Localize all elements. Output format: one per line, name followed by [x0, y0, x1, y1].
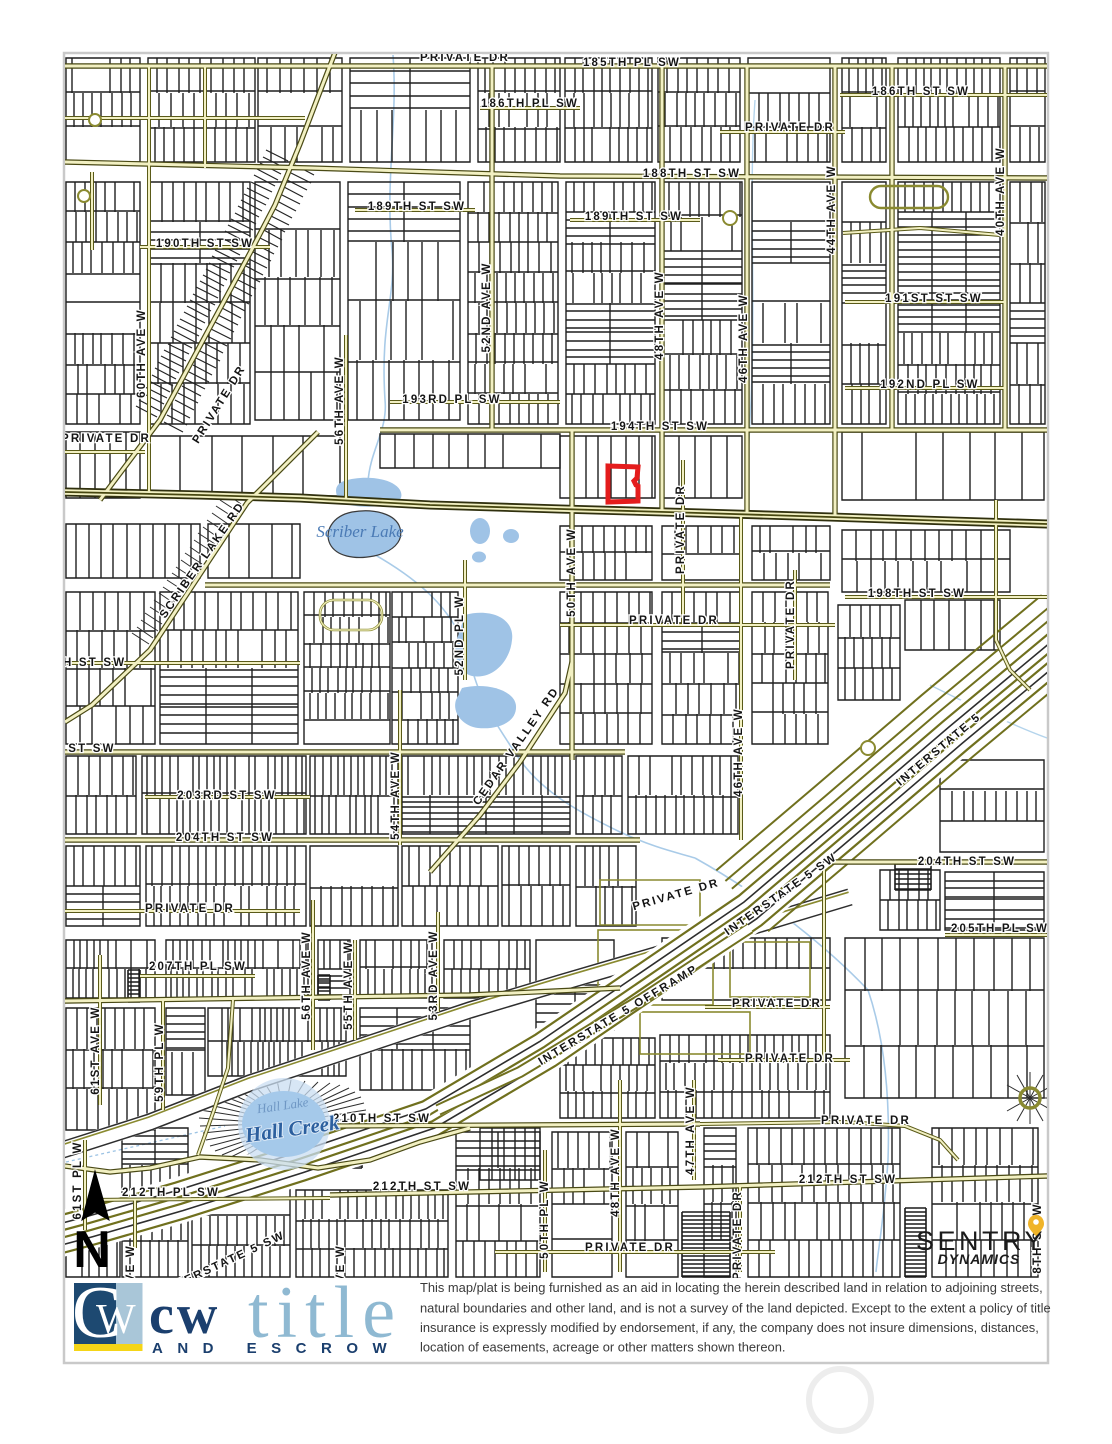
svg-text:204TH ST SW: 204TH ST SW [176, 832, 274, 844]
svg-text:56TH AVE W: 56TH AVE W [334, 355, 346, 445]
svg-text:189TH ST SW: 189TH ST SW [368, 201, 466, 213]
svg-text:198TH ST SW: 198TH ST SW [868, 588, 966, 600]
svg-text:189TH ST SW: 189TH ST SW [585, 211, 683, 223]
svg-text:47TH AVE W: 47TH AVE W [685, 1085, 697, 1175]
svg-text:48TH AVE W: 48TH AVE W [610, 1127, 622, 1217]
svg-text:insurance is expressly modifie: insurance is expressly modified by endor… [420, 1320, 1039, 1335]
svg-text:210TH ST SW: 210TH ST SW [333, 1113, 431, 1125]
svg-text:N: N [73, 1221, 111, 1279]
svg-text:191ST ST SW: 191ST ST SW [885, 293, 983, 305]
svg-text:186TH ST SW: 186TH ST SW [872, 86, 970, 98]
svg-text:212TH ST SW: 212TH ST SW [373, 1181, 471, 1193]
svg-text:52ND AVE W: 52ND AVE W [481, 261, 493, 352]
svg-text:PRIVATE DR: PRIVATE DR [785, 579, 797, 669]
svg-text:50TH AVE W: 50TH AVE W [566, 527, 578, 617]
svg-text:56TH AVE W: 56TH AVE W [301, 930, 313, 1020]
svg-text:194TH ST SW: 194TH ST SW [611, 421, 709, 433]
svg-text:59TH PL W: 59TH PL W [154, 1022, 166, 1102]
svg-text:PRIVATE DR: PRIVATE DR [61, 433, 151, 445]
svg-text:207TH PL SW: 207TH PL SW [149, 961, 247, 973]
svg-text:61ST PL W: 61ST PL W [72, 1140, 84, 1219]
svg-text:This map/plat is being furnish: This map/plat is being furnished as an a… [420, 1280, 1043, 1295]
svg-text:53RD AVE W: 53RD AVE W [428, 929, 440, 1020]
svg-text:PRIVATE DR: PRIVATE DR [732, 998, 822, 1010]
svg-text:190TH ST SW: 190TH ST SW [156, 238, 254, 250]
svg-text:PRIVATE DR: PRIVATE DR [732, 1190, 744, 1280]
svg-text:60TH AVE W: 60TH AVE W [136, 308, 148, 398]
svg-text:W: W [96, 1297, 136, 1343]
svg-text:204TH ST SW: 204TH ST SW [918, 856, 1016, 868]
svg-text:212TH ST SW: 212TH ST SW [799, 1174, 897, 1186]
svg-text:natural boundaries and other l: natural boundaries and other land, and i… [420, 1301, 1051, 1316]
svg-text:location of easements, acreage: location of easements, acreage or other … [420, 1340, 785, 1355]
svg-text:52ND PL W: 52ND PL W [454, 595, 466, 676]
svg-text:PRIVATE DR: PRIVATE DR [675, 484, 687, 574]
svg-text:PRIVATE DR: PRIVATE DR [629, 615, 719, 627]
svg-text:212TH PL SW: 212TH PL SW [122, 1187, 220, 1199]
svg-text:186TH PL SW: 186TH PL SW [481, 98, 579, 110]
svg-text:PRIVATE DR: PRIVATE DR [145, 903, 235, 915]
svg-text:cw: cw [149, 1284, 220, 1346]
svg-text:PRIVATE DR: PRIVATE DR [745, 1053, 835, 1065]
svg-text:46TH AVE W: 46TH AVE W [738, 293, 750, 383]
svg-text:46TH AVE W: 46TH AVE W [733, 707, 745, 797]
svg-text:ST SW: ST SW [68, 743, 115, 755]
svg-text:205TH PL SW: 205TH PL SW [951, 923, 1049, 935]
svg-text:PRIVATE DR: PRIVATE DR [585, 1242, 675, 1254]
svg-text:PRIVATE DR: PRIVATE DR [821, 1115, 911, 1127]
svg-text:55TH AVE W: 55TH AVE W [343, 940, 355, 1030]
svg-text:185TH PL SW: 185TH PL SW [583, 57, 681, 69]
svg-text:50TH PL W: 50TH PL W [539, 1179, 551, 1259]
svg-text:40TH AVE W: 40TH AVE W [995, 146, 1007, 236]
svg-text:44TH AVE W: 44TH AVE W [826, 164, 838, 254]
svg-text:61ST AVE W: 61ST AVE W [90, 1005, 102, 1094]
svg-text:193RD PL SW: 193RD PL SW [402, 394, 501, 406]
svg-text:54TH AVE W: 54TH AVE W [390, 750, 402, 840]
svg-text:203RD ST SW: 203RD ST SW [177, 790, 277, 802]
svg-text:48TH AVE W: 48TH AVE W [654, 270, 666, 360]
svg-text:188TH ST SW: 188TH ST SW [643, 168, 741, 180]
svg-text:AND ESCROW: AND ESCROW [152, 1340, 401, 1357]
svg-text:192ND PL SW: 192ND PL SW [880, 379, 979, 391]
svg-text:DYNAMICS: DYNAMICS [938, 1251, 1021, 1267]
svg-text:PRIVATE DR: PRIVATE DR [745, 122, 835, 134]
svg-text:Scriber Lake: Scriber Lake [316, 522, 404, 541]
